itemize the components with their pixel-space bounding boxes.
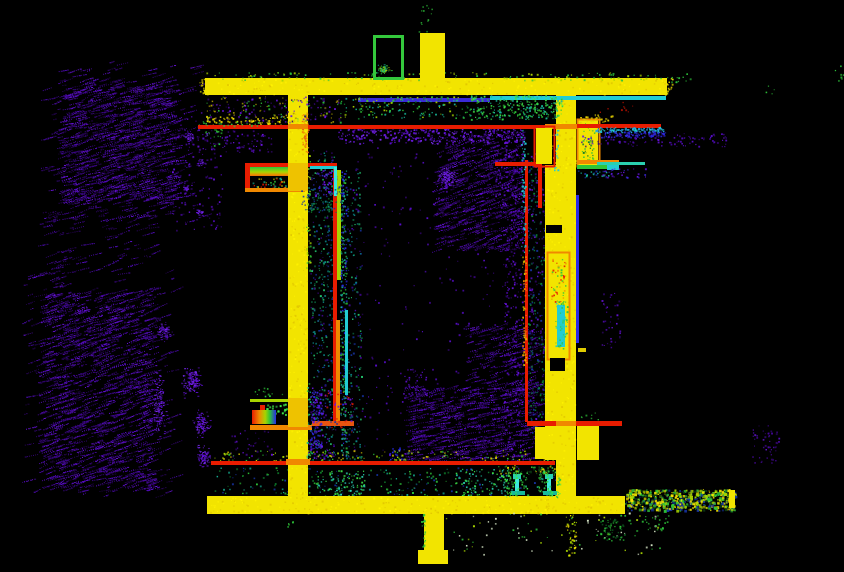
point-cloud-viewport[interactable]: [0, 0, 844, 572]
lidar-map-figure: [0, 0, 844, 572]
